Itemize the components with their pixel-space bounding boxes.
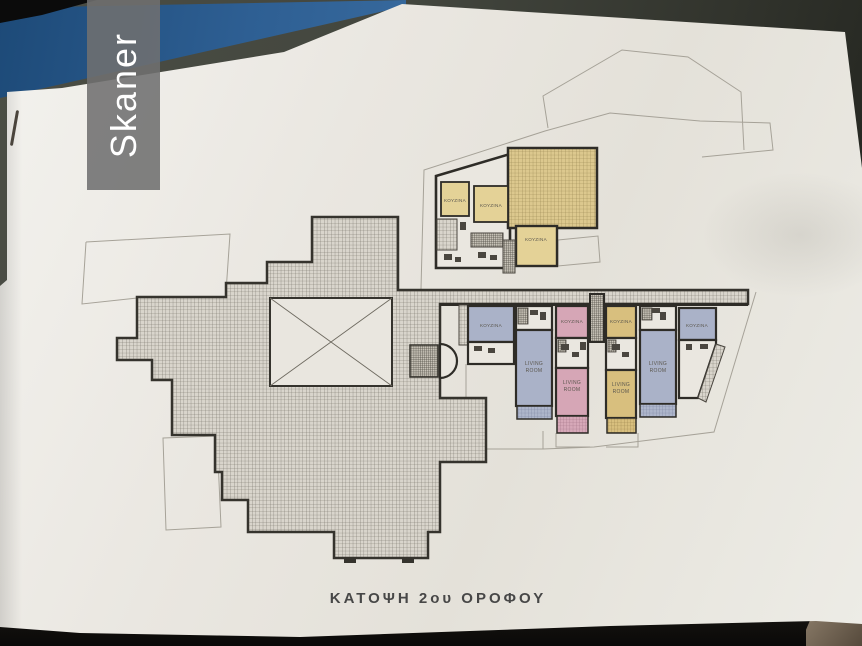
kitchen-label: ΚΟΥΖΙΝΑ [444,198,467,203]
top-unit-terrace-hatched [508,148,597,228]
balcony-hatched [640,404,676,417]
balcony-hatched [557,416,588,433]
kitchen-label: ΚΟΥΖΙΝΑ [525,237,548,242]
photo-of-floor-plan: ΚΟΥΖΙΝΑ ΚΟΥΖΙΝΑ ΚΟΥΖΙΝΑ [0,0,862,646]
living-room-label: ROOM [564,387,581,393]
balcony-hatched [607,418,636,433]
stair-hatch [471,233,503,247]
kitchen-room [516,226,557,266]
living-room-label: LIVING [563,380,581,386]
apartment-row: ΚΟΥΖΙΝΑ ΚΟΥΖΙΝΑ ΚΟΥΖΙΝΑ ΚΟΥΖΙΝΑ LIVING R… [459,294,725,433]
living-room-label: ROOM [613,389,630,395]
living-room [640,330,676,404]
kitchen-label: ΚΟΥΖΙΝΑ [561,319,584,324]
living-room-label: LIVING [525,361,543,367]
top-unit: ΚΟΥΖΙΝΑ ΚΟΥΖΙΝΑ ΚΟΥΖΙΝΑ [436,148,597,273]
kitchen-label: ΚΟΥΖΙΝΑ [686,323,709,328]
balcony-hatched [517,406,552,419]
corridor-end-hatch [459,305,468,345]
stair-hatch [503,240,515,273]
kitchen-label: ΚΟΥΖΙΝΑ [480,323,503,328]
stair-hatch [410,345,438,377]
living-room-label: LIVING [649,361,667,367]
living-room-label: LIVING [612,382,630,388]
kitchen-label: ΚΟΥΖΙΝΑ [610,319,633,324]
floor-plan-title: ΚΑΤΟΨΗ 2ου ΟΡΟΦΟΥ [260,590,616,607]
scanner-watermark-label: Skaner [103,32,145,158]
spiral-stair-arc [440,344,457,378]
wall-tab [344,557,356,563]
living-room-label: ROOM [650,368,667,374]
scanner-watermark: Skaner [87,0,160,190]
wall-tab [402,557,414,563]
living-room-label: ROOM [526,368,543,374]
kitchen-label: ΚΟΥΖΙΝΑ [480,203,503,208]
bath-tile-hatch [437,219,457,250]
stair-core-hatch [590,294,604,342]
